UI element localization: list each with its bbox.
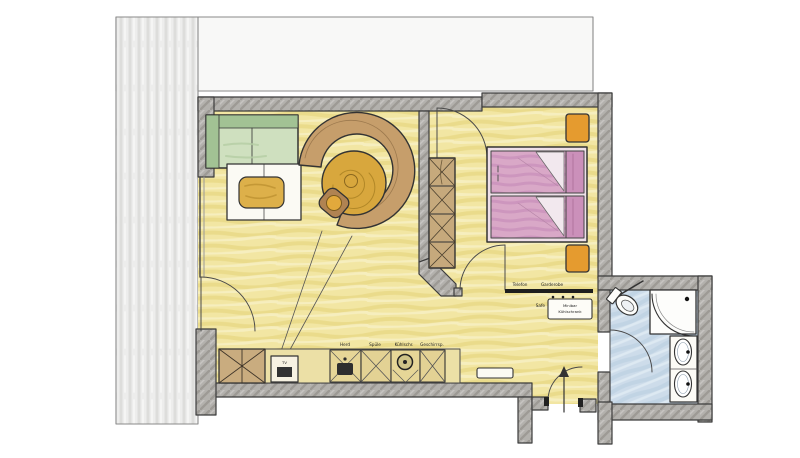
safe-label: Safe xyxy=(536,303,546,308)
wall-bath-bottom xyxy=(598,404,712,420)
tv-stand: TV xyxy=(271,356,298,382)
wall-living-top xyxy=(198,97,482,111)
cabinet-unit-1 xyxy=(361,350,391,382)
double-bed xyxy=(487,147,587,242)
table-tray xyxy=(239,177,284,208)
minibar-label-2: Kühlschrank xyxy=(558,309,582,314)
coat-hook xyxy=(562,296,565,299)
garderobe-label: Garderobe xyxy=(541,282,564,287)
nightstand-top xyxy=(566,114,589,142)
pillow-bottom xyxy=(566,196,584,238)
coat-hook xyxy=(572,296,575,299)
wall-partition xyxy=(419,111,429,262)
shower-drain xyxy=(685,297,689,301)
bench xyxy=(477,368,513,378)
cabinet-unit-2 xyxy=(420,350,445,382)
coat-rack xyxy=(505,289,593,293)
washbasin-counter xyxy=(670,336,697,402)
kitchen-label-1: Herd xyxy=(340,342,350,347)
wall-below-entrance xyxy=(598,402,612,444)
wall-corridor-left xyxy=(518,397,532,443)
wall-bath-left-lower xyxy=(598,372,610,406)
coat-hook xyxy=(552,296,555,299)
tv-label: TV xyxy=(281,360,287,365)
nightstand-bottom xyxy=(566,245,589,272)
entrance-door-jamb-right xyxy=(578,398,583,407)
kitchen-label-4: Geschirrsp. xyxy=(420,342,444,347)
faucet-top xyxy=(686,350,690,354)
terrace-left-area xyxy=(116,17,198,424)
faucet-bottom xyxy=(686,382,690,386)
minibar: Minibar Kühlschrank xyxy=(548,299,592,319)
telefon-label: Telefon xyxy=(512,282,528,287)
kitchen-label-3: Kühlschr. xyxy=(395,342,414,347)
floor-plan-svg: TV Herd Spüle Kühlschr. Geschirrsp. xyxy=(0,0,800,458)
pillow-top xyxy=(566,151,584,193)
wall-hall-stub xyxy=(454,288,462,296)
entrance-door-jamb-left xyxy=(544,397,549,406)
wall-left-pier xyxy=(196,329,216,415)
kitchen-label-2: Spüle xyxy=(369,342,381,347)
floor-plan: TV Herd Spüle Kühlschr. Geschirrsp. xyxy=(0,0,800,458)
corner-shower xyxy=(650,290,696,336)
minibar-label-1: Minibar xyxy=(563,303,578,308)
wall-bath-right xyxy=(698,276,712,422)
tv-unit xyxy=(277,367,292,377)
sofa xyxy=(206,115,298,168)
wall-bedroom-top xyxy=(482,93,612,107)
wardrobe xyxy=(429,158,455,268)
cooktop-unit xyxy=(391,350,420,382)
wall-bedroom-right xyxy=(598,93,612,278)
sink-unit xyxy=(330,350,361,382)
kitchen-closet xyxy=(219,349,265,383)
coffee-table xyxy=(227,164,301,220)
wall-kitchen-bottom xyxy=(198,383,532,397)
